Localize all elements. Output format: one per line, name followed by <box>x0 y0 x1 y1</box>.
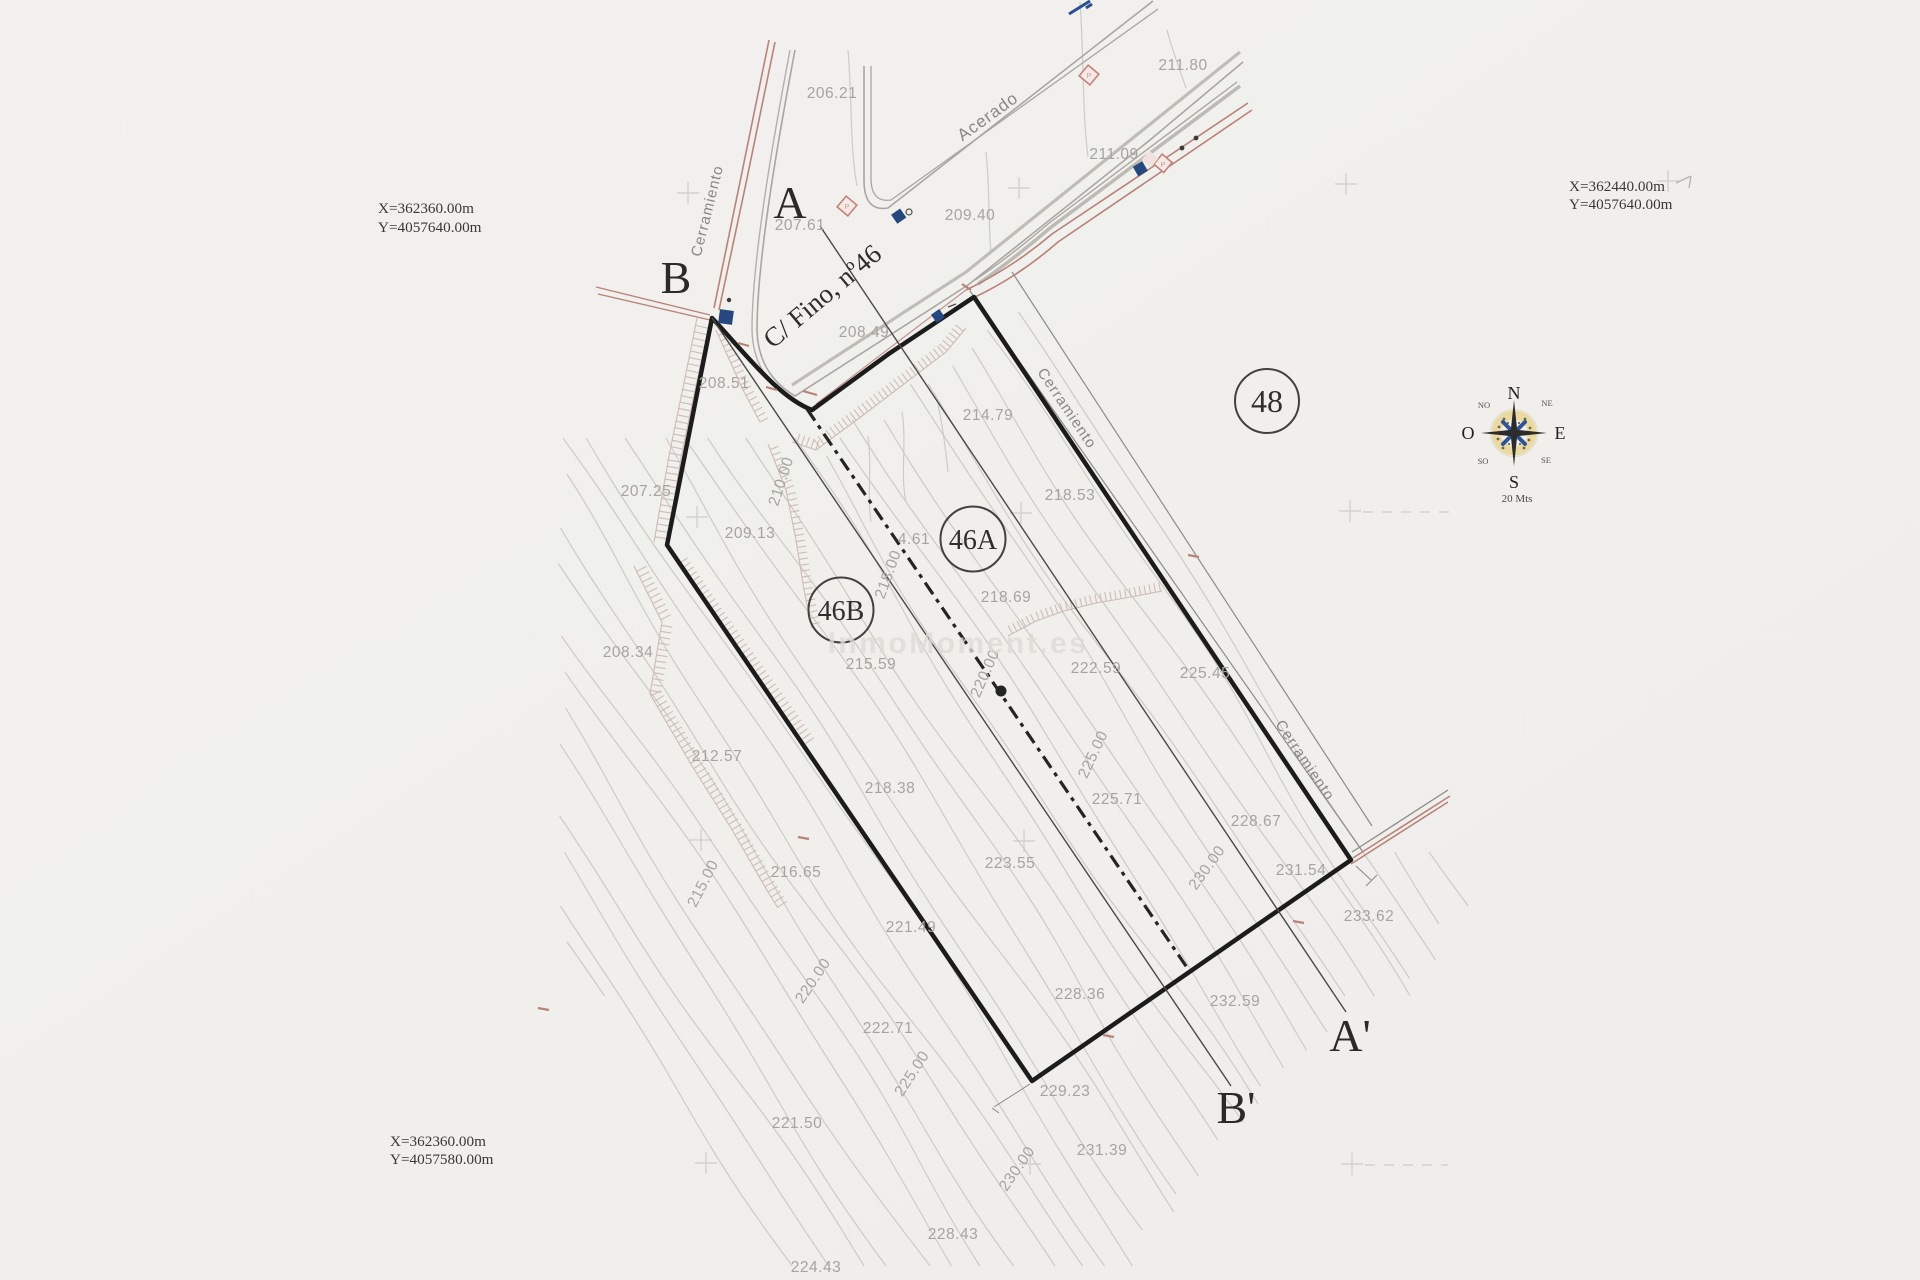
svg-text:223.55: 223.55 <box>985 855 1035 872</box>
svg-text:221.50: 221.50 <box>772 1115 822 1132</box>
svg-text:208.51: 208.51 <box>699 375 749 392</box>
svg-text:218.38: 218.38 <box>865 780 915 797</box>
svg-text:P: P <box>1161 162 1166 169</box>
svg-text:B: B <box>661 252 692 303</box>
svg-text:InmoMoment.es: InmoMoment.es <box>828 627 1089 660</box>
svg-text:218.69: 218.69 <box>981 589 1031 606</box>
svg-text:229.23: 229.23 <box>1040 1083 1090 1100</box>
svg-text:211.80: 211.80 <box>1158 57 1207 74</box>
svg-text:Y=4057640.00m: Y=4057640.00m <box>378 219 482 236</box>
svg-text:A': A' <box>1329 1010 1371 1061</box>
svg-text:221.49: 221.49 <box>886 919 936 936</box>
svg-text:O: O <box>1462 423 1475 443</box>
svg-text:SO: SO <box>1478 456 1489 466</box>
svg-text:NO: NO <box>1478 400 1490 410</box>
svg-text:209.13: 209.13 <box>725 525 775 542</box>
svg-text:225.71: 225.71 <box>1092 791 1142 808</box>
svg-text:NE: NE <box>1541 398 1552 408</box>
svg-text:224.43: 224.43 <box>791 1259 841 1276</box>
svg-text:225.45: 225.45 <box>1180 665 1230 682</box>
svg-text:206.21: 206.21 <box>807 85 857 102</box>
svg-text:B': B' <box>1217 1082 1256 1133</box>
svg-text:4.61: 4.61 <box>898 531 930 548</box>
svg-text:48: 48 <box>1251 383 1283 419</box>
svg-text:211.09: 211.09 <box>1089 146 1138 163</box>
svg-text:214.79: 214.79 <box>963 407 1013 424</box>
svg-text:20 Mts: 20 Mts <box>1502 493 1533 505</box>
svg-text:46A: 46A <box>949 525 998 556</box>
svg-text:46B: 46B <box>818 596 865 627</box>
svg-text:222.71: 222.71 <box>863 1020 913 1037</box>
svg-text:228.67: 228.67 <box>1231 813 1281 830</box>
svg-text:232.59: 232.59 <box>1210 993 1260 1010</box>
svg-text:216.65: 216.65 <box>771 864 821 881</box>
svg-text:233.62: 233.62 <box>1344 908 1394 925</box>
svg-text:228.36: 228.36 <box>1055 986 1105 1003</box>
svg-text:P: P <box>845 204 850 211</box>
svg-text:207.25: 207.25 <box>621 483 671 500</box>
svg-text:228.43: 228.43 <box>928 1226 978 1243</box>
svg-text:N: N <box>1508 383 1521 403</box>
svg-text:218.53: 218.53 <box>1045 487 1095 504</box>
svg-text:X=362360.00m: X=362360.00m <box>378 200 474 217</box>
svg-text:X=362440.00m: X=362440.00m <box>1569 178 1665 195</box>
svg-text:208.34: 208.34 <box>603 644 653 661</box>
svg-text:E: E <box>1555 423 1566 443</box>
svg-text:231.39: 231.39 <box>1077 1142 1127 1159</box>
svg-text:P: P <box>1087 73 1092 80</box>
svg-text:SE: SE <box>1541 455 1551 465</box>
svg-text:S: S <box>1509 472 1519 492</box>
svg-text:212.57: 212.57 <box>692 748 742 765</box>
svg-text:A: A <box>773 177 806 228</box>
svg-text:X=362360.00m: X=362360.00m <box>390 1133 486 1150</box>
svg-text:Y=4057580.00m: Y=4057580.00m <box>390 1151 494 1168</box>
svg-text:208.49: 208.49 <box>839 324 889 341</box>
svg-text:209.40: 209.40 <box>945 207 995 224</box>
svg-text:231.54: 231.54 <box>1276 862 1326 879</box>
svg-text:222.59: 222.59 <box>1071 660 1121 677</box>
svg-text:Y=4057640.00m: Y=4057640.00m <box>1569 196 1673 213</box>
